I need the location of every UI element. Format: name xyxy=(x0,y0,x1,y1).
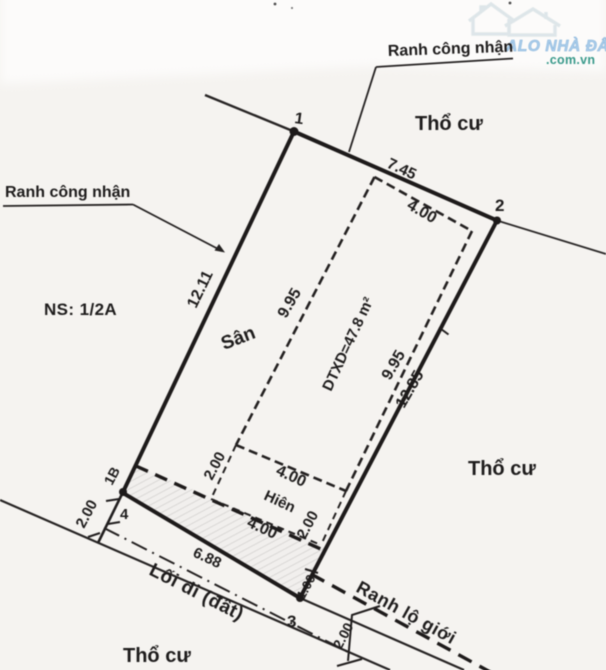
svg-text:Ranh công nhận: Ranh công nhận xyxy=(5,184,130,201)
svg-text:2: 2 xyxy=(495,196,504,215)
svg-text:4: 4 xyxy=(120,506,129,523)
svg-text:.com.vn: .com.vn xyxy=(546,53,595,67)
svg-text:Thổ cư: Thổ cư xyxy=(123,645,191,667)
svg-text:Thổ cư: Thổ cư xyxy=(415,113,483,135)
svg-text:Thổ cư: Thổ cư xyxy=(468,458,536,480)
svg-text:NS: 1/2A: NS: 1/2A xyxy=(44,300,117,319)
svg-text:3: 3 xyxy=(287,612,296,631)
